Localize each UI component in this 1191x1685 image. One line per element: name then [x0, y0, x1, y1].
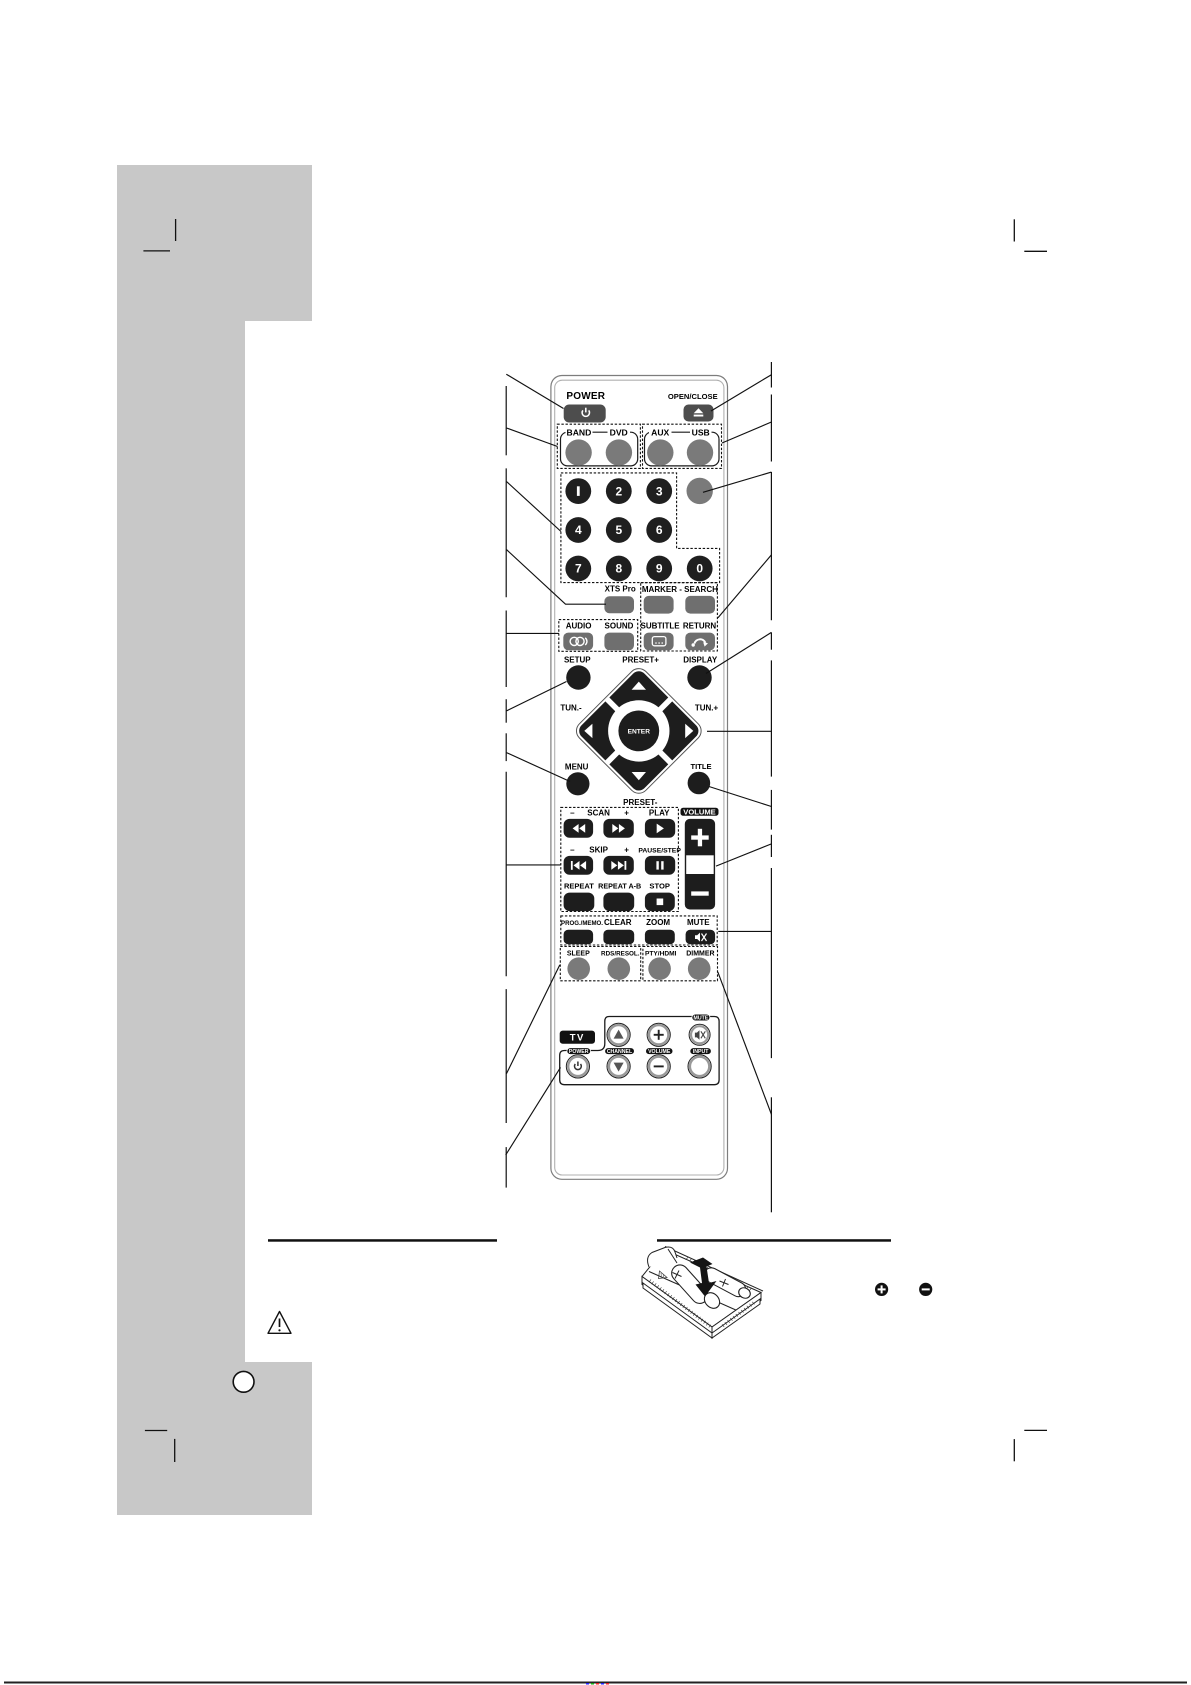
svg-text:CHANNEL: CHANNEL	[607, 1049, 633, 1055]
svg-text:6: 6	[656, 523, 663, 537]
svg-text:MENU: MENU	[565, 762, 589, 771]
svg-text:TUN.+: TUN.+	[695, 704, 719, 713]
svg-text:VOLUME: VOLUME	[648, 1049, 671, 1055]
svg-text:4: 4	[575, 523, 582, 537]
svg-text:PTY/HDMI: PTY/HDMI	[645, 950, 677, 957]
svg-text:TITLE: TITLE	[690, 762, 711, 771]
svg-text:PLAY: PLAY	[649, 808, 670, 817]
svg-text:SOUND: SOUND	[605, 621, 634, 630]
svg-text:PRESET+: PRESET+	[622, 655, 659, 664]
svg-text:MARKER - SEARCH: MARKER - SEARCH	[642, 585, 718, 594]
svg-text:DIMMER: DIMMER	[686, 950, 714, 957]
svg-text:RETURN: RETURN	[683, 621, 717, 630]
svg-text:REPEAT: REPEAT	[564, 882, 594, 891]
svg-text:VOLUME: VOLUME	[683, 808, 716, 817]
svg-text:STOP: STOP	[649, 882, 670, 891]
svg-text:PAUSE/STEP: PAUSE/STEP	[638, 848, 681, 855]
svg-text:OPEN/CLOSE: OPEN/CLOSE	[668, 392, 718, 401]
svg-text:+: +	[624, 846, 629, 855]
svg-text:POWER: POWER	[569, 1049, 589, 1055]
svg-text:2: 2	[615, 484, 622, 498]
svg-text:XTS Pro: XTS Pro	[605, 585, 636, 594]
svg-text:BAND: BAND	[566, 427, 591, 437]
svg-text:RDS/RESOL.: RDS/RESOL.	[601, 950, 640, 957]
svg-text:5: 5	[615, 523, 622, 537]
svg-text:–: –	[570, 846, 575, 855]
svg-text:TUN.-: TUN.-	[560, 704, 582, 713]
svg-text:AUDIO: AUDIO	[566, 621, 592, 630]
svg-text:ENTER: ENTER	[628, 728, 651, 735]
svg-text:PROG./MEMO.: PROG./MEMO.	[561, 920, 603, 927]
svg-text:+: +	[624, 808, 629, 817]
svg-text:SCAN: SCAN	[587, 808, 610, 817]
svg-text:AUX: AUX	[651, 427, 669, 437]
svg-text:USB: USB	[692, 427, 710, 437]
svg-text:9: 9	[656, 562, 663, 576]
svg-text:POWER: POWER	[566, 391, 605, 402]
svg-text:DISPLAY: DISPLAY	[683, 655, 718, 664]
svg-text:7: 7	[575, 562, 582, 576]
svg-text:INPUT: INPUT	[693, 1049, 709, 1055]
svg-text:SLEEP: SLEEP	[567, 950, 590, 957]
svg-text:–: –	[570, 808, 575, 817]
svg-text:PRESET-: PRESET-	[623, 798, 658, 807]
svg-text:DVD: DVD	[610, 427, 628, 437]
svg-text:MUTE: MUTE	[687, 918, 710, 927]
svg-text:3: 3	[656, 484, 663, 498]
svg-text:0: 0	[696, 562, 703, 576]
svg-text:SUBTITLE: SUBTITLE	[641, 621, 681, 630]
svg-text:REPEAT A-B: REPEAT A-B	[598, 882, 641, 891]
svg-text:ZOOM: ZOOM	[646, 918, 670, 927]
svg-text:CLEAR: CLEAR	[604, 918, 632, 927]
svg-text:SKIP: SKIP	[589, 846, 608, 855]
svg-text:TV: TV	[570, 1033, 585, 1044]
svg-text:MUTE: MUTE	[694, 1016, 709, 1022]
svg-text:SETUP: SETUP	[564, 655, 591, 664]
svg-text:8: 8	[615, 562, 622, 576]
